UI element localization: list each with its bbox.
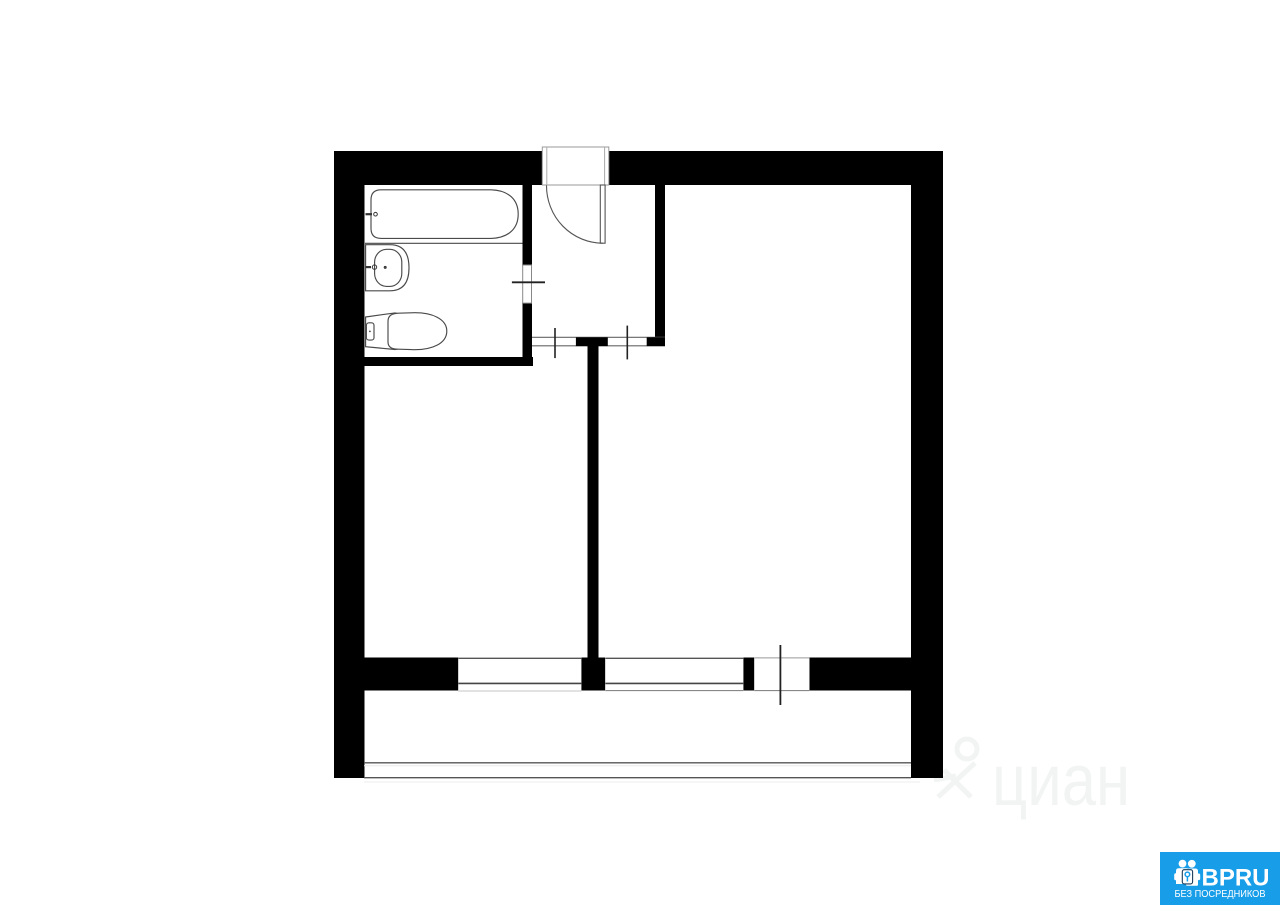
svg-text:BPRU: BPRU xyxy=(1202,865,1270,892)
svg-text:БЕЗ ПОСРЕДНИКОВ: БЕЗ ПОСРЕДНИКОВ xyxy=(1175,889,1266,900)
svg-text:циан: циан xyxy=(992,741,1130,821)
